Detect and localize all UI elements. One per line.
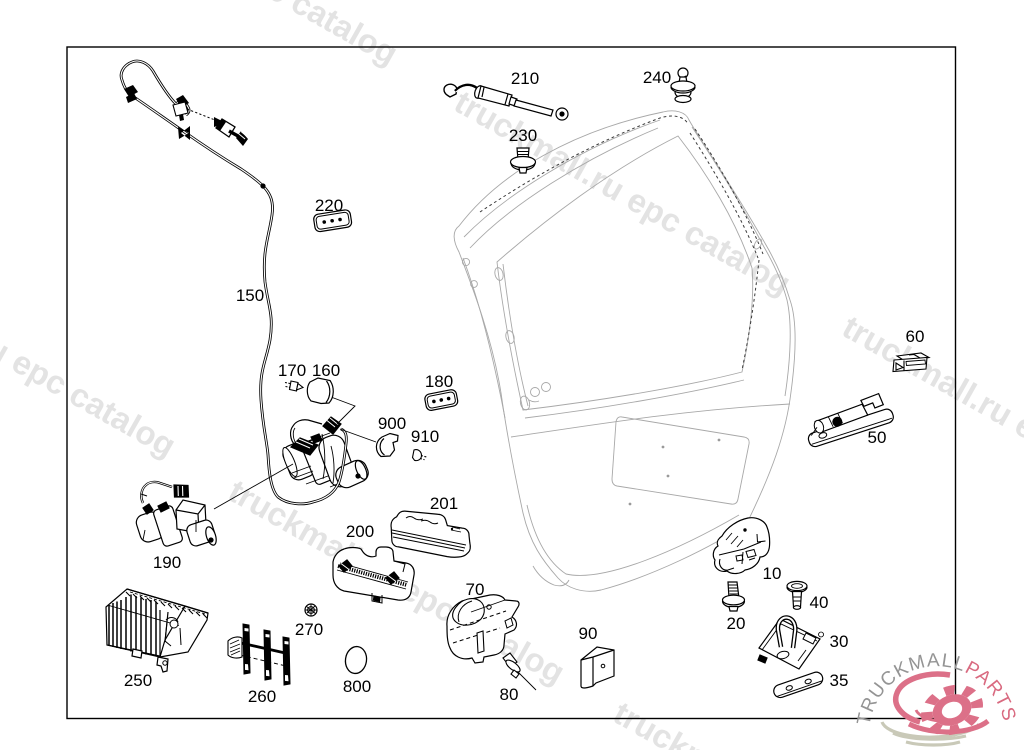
svg-text:150: 150 [236,286,264,305]
svg-text:60: 60 [906,327,925,346]
svg-text:250: 250 [124,671,152,690]
svg-text:260: 260 [248,687,276,706]
svg-text:truckmall.ru epc catalog: truckmall.ru epc catalog [608,694,957,750]
svg-text:201: 201 [430,494,458,513]
svg-text:80: 80 [500,685,519,704]
svg-text:190: 190 [153,553,181,572]
svg-text:200: 200 [346,522,374,541]
svg-text:truckmall.ru epc catalog: truckmall.ru epc catalog [56,0,405,72]
svg-text:40: 40 [810,593,829,612]
svg-text:10: 10 [763,564,782,583]
svg-text:20: 20 [727,614,746,633]
svg-text:180: 180 [425,372,453,391]
svg-text:800: 800 [343,677,371,696]
svg-text:270: 270 [295,620,323,639]
svg-text:220: 220 [315,196,343,215]
svg-text:50: 50 [868,428,887,447]
svg-text:230: 230 [509,126,537,145]
svg-text:170: 170 [278,361,306,380]
svg-text:70: 70 [466,580,485,599]
svg-text:910: 910 [411,427,439,446]
svg-text:90: 90 [579,624,598,643]
svg-text:30: 30 [830,632,849,651]
svg-text:truckmall.ru epc catalog: truckmall.ru epc catalog [0,245,182,464]
svg-text:35: 35 [830,671,849,690]
svg-text:240: 240 [643,68,671,87]
svg-text:210: 210 [511,69,539,88]
svg-text:900: 900 [378,414,406,433]
svg-text:160: 160 [312,361,340,380]
